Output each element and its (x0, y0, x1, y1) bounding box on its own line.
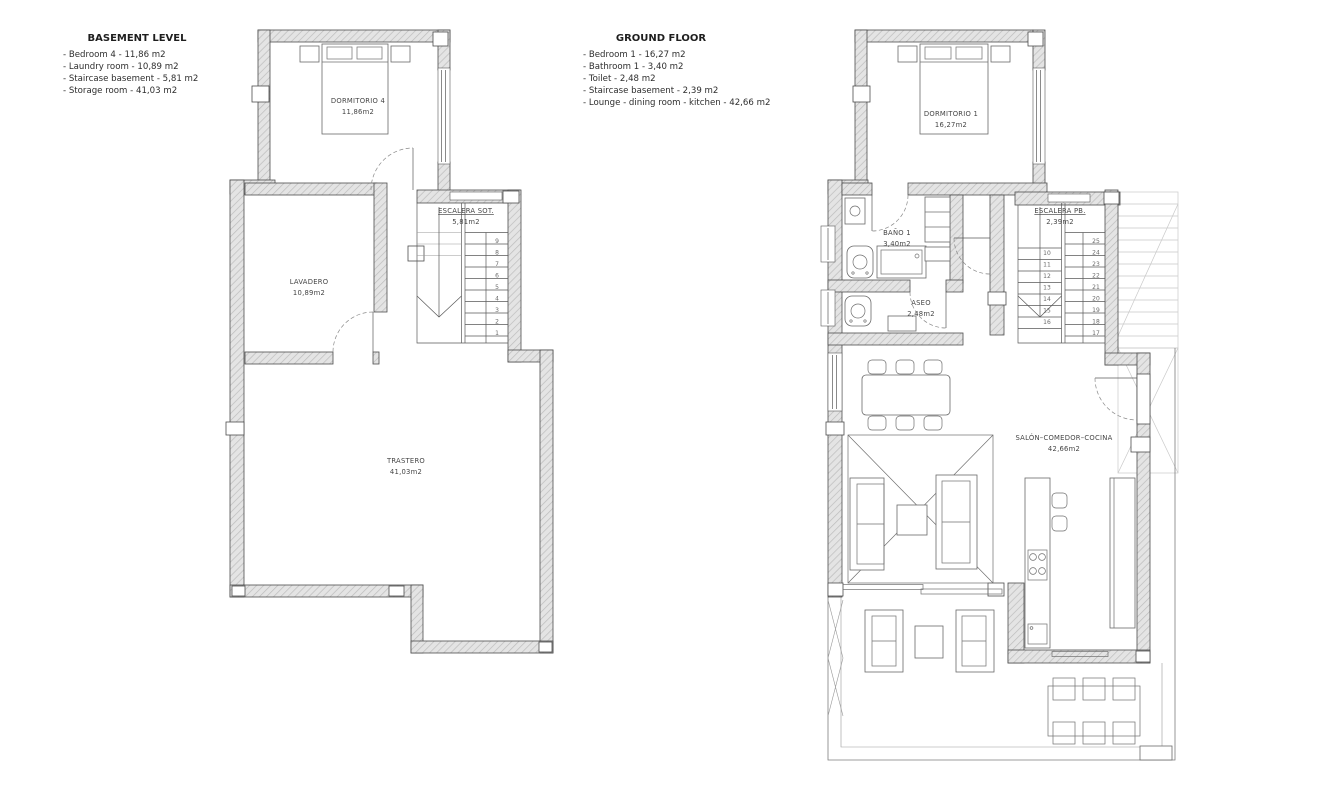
bathroom-fixtures (845, 197, 950, 278)
sofa-icon (936, 475, 977, 569)
toilet-window-icon (821, 290, 835, 326)
step-number: 16 (1043, 319, 1051, 326)
room-area: 11,86m2 (342, 108, 374, 116)
room-label: TRASTERO (386, 457, 425, 465)
door-swing-icon (1095, 378, 1137, 420)
legend-item: - Lounge - dining room - kitchen - 42,66… (583, 98, 770, 108)
toilet-room-fixtures (845, 296, 916, 331)
terrace-table-icon (915, 626, 943, 658)
legend-item: - Toilet - 2,48 m2 (583, 74, 656, 84)
legend-item: - Staircase basement - 5,81 m2 (63, 74, 198, 84)
step-number: 12 (1043, 273, 1051, 280)
basement-furniture (300, 44, 410, 134)
basement-bedroom-window-icon (438, 68, 450, 164)
room-area: 2,48m2 (907, 310, 935, 318)
bathroom-window-icon (821, 226, 835, 262)
floorplan-sheet: 9 8 7 6 5 4 3 2 1 (0, 0, 1320, 800)
nightstand-icon (991, 46, 1010, 62)
room-area: 16,27m2 (935, 121, 967, 129)
legend-item: - Staircase basement - 2,39 m2 (583, 86, 718, 96)
room-label: ASEO (911, 299, 931, 307)
step-number: 5 (495, 284, 499, 291)
step-number: 20 (1092, 296, 1100, 303)
lounge-window-icon (828, 353, 842, 411)
room-label: SALÓN–COMEDOR–COCINA (1015, 433, 1112, 442)
terrace-step (1140, 746, 1172, 760)
basement-labels: DORMITORIO 4 11,86m2 LAVADERO 10,89m2 ES… (290, 97, 494, 476)
step-number: 7 (495, 261, 499, 268)
door-swing-icon (872, 195, 908, 231)
room-label: BAÑO 1 (883, 228, 911, 237)
outdoor-dining-set-icon (1048, 678, 1140, 744)
terrace-armchair-icon (865, 610, 903, 672)
legend-item: - Bathroom 1 - 3,40 m2 (583, 62, 684, 72)
basement-openings (226, 32, 552, 652)
step-number: 10 (1043, 250, 1051, 257)
basement-doors (333, 148, 413, 352)
legend-item: - Laundry room - 10,89 m2 (63, 62, 179, 72)
legend-item: - Storage room - 41,03 m2 (63, 86, 177, 96)
legend-item: - Bedroom 4 - 11,86 m2 (63, 50, 166, 60)
step-number: 21 (1092, 284, 1100, 291)
step-number: 9 (495, 238, 499, 245)
step-number: 1 (495, 330, 499, 337)
room-area: 10,89m2 (293, 289, 325, 297)
legend-basement: BASEMENT LEVEL - Bedroom 4 - 11,86 m2 - … (63, 33, 198, 96)
step-number: 8 (495, 250, 499, 257)
kitchen-counter-icon (1110, 478, 1135, 628)
step-number: 18 (1092, 319, 1100, 326)
basement-walls (230, 30, 553, 653)
kitchen-island-icon (1025, 478, 1067, 648)
nightstand-icon (391, 46, 410, 62)
ground-plan: 10 11 12 13 14 15 16 25 24 23 22 21 20 1… (821, 30, 1178, 760)
step-number: 24 (1092, 250, 1100, 257)
ground-step-numbers-upper: 25 24 23 22 21 20 19 18 17 (1092, 238, 1100, 337)
ground-bedroom-window-icon (1033, 68, 1045, 164)
nightstand-icon (300, 46, 319, 62)
room-label: DORMITORIO 4 (331, 97, 385, 105)
step-number: 4 (495, 296, 499, 303)
step-number: 11 (1043, 262, 1051, 269)
step-number: 14 (1043, 296, 1051, 303)
room-label: DORMITORIO 1 (924, 110, 978, 118)
room-area: 2,39m2 (1046, 218, 1074, 226)
room-area: 5,81m2 (452, 218, 480, 226)
bed-icon (322, 44, 388, 134)
floorplan-drawing: 9 8 7 6 5 4 3 2 1 (0, 0, 1320, 800)
step-number: 17 (1092, 330, 1100, 337)
room-area: 3,40m2 (883, 240, 911, 248)
ground-step-numbers-lower: 10 11 12 13 14 15 16 (1043, 250, 1051, 326)
nightstand-icon (898, 46, 917, 62)
dining-set-icon (862, 360, 950, 430)
coffee-table-icon (897, 505, 927, 535)
step-number: 2 (495, 319, 499, 326)
sofa-icon (850, 478, 884, 570)
room-area: 41,03m2 (390, 468, 422, 476)
legend-ground: GROUND FLOOR - Bedroom 1 - 16,27 m2 - Ba… (583, 33, 770, 108)
step-number: 6 (495, 273, 499, 280)
ground-furniture (845, 44, 1135, 648)
basement-plan: 9 8 7 6 5 4 3 2 1 (226, 30, 553, 653)
room-area: 42,66m2 (1048, 445, 1080, 453)
door-swing-icon (333, 312, 373, 352)
legend-item: - Bedroom 1 - 16,27 m2 (583, 50, 686, 60)
step-number: 15 (1043, 308, 1051, 315)
step-number: 23 (1092, 261, 1100, 268)
legend-basement-title: BASEMENT LEVEL (88, 33, 188, 44)
step-number: 3 (495, 307, 499, 314)
room-label: ESCALERA PB. (1034, 207, 1085, 215)
step-number: 25 (1092, 238, 1100, 245)
basement-step-numbers: 9 8 7 6 5 4 3 2 1 (495, 238, 499, 337)
step-number: 22 (1092, 273, 1100, 280)
room-label: LAVADERO (290, 278, 329, 286)
legend-ground-title: GROUND FLOOR (616, 33, 707, 44)
terrace-armchair-icon (956, 610, 994, 672)
step-number: 13 (1043, 285, 1051, 292)
room-label: ESCALERA SOT. (438, 207, 494, 215)
step-number: 19 (1092, 307, 1100, 314)
